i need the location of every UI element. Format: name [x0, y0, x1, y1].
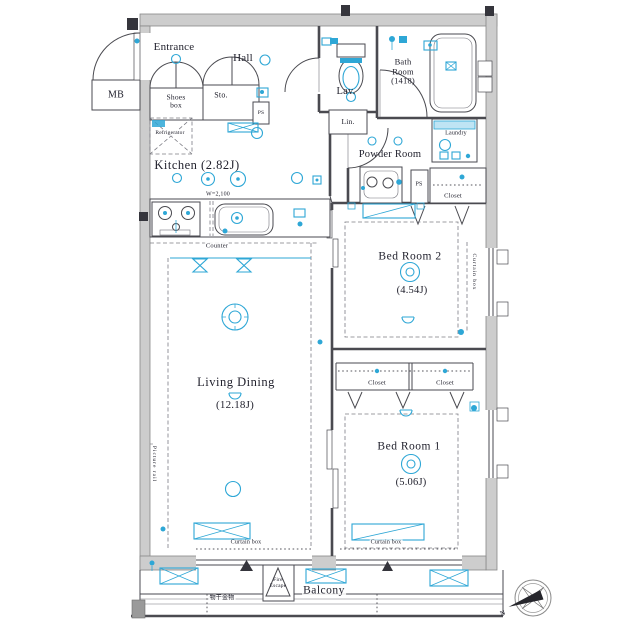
bedroom2-label: Bed Room 2	[378, 251, 441, 264]
paper-holder-icon	[322, 38, 331, 45]
closet-label: Closet	[444, 192, 462, 199]
closet-folding-door	[455, 206, 469, 224]
closet-folding-door	[348, 392, 362, 408]
column-marker	[139, 212, 148, 221]
wall-light-icon	[402, 317, 414, 323]
column-marker	[485, 6, 494, 16]
wall-light-icon	[400, 410, 412, 416]
living-dining-label: Living Dining	[197, 375, 275, 389]
living-dining-size-label: (12.18J)	[216, 399, 254, 411]
shoes-box-bifold-door	[150, 62, 203, 88]
ceiling-light-icon	[292, 173, 303, 184]
ceiling-light-icon	[252, 128, 263, 139]
ceiling-light-icon	[173, 174, 182, 183]
lavatory-label: Lav.	[336, 86, 355, 98]
column-marker	[127, 18, 138, 30]
refrigerator-label: Refrigerator	[154, 130, 185, 136]
fire-escape-label: Fire Escape	[270, 578, 287, 590]
windows	[139, 33, 508, 571]
meter-box-label: MB	[108, 89, 124, 100]
shoes-box-label: Shoes box	[167, 94, 186, 111]
bedroom1-sliding-door	[327, 430, 332, 469]
closet-folding-door	[450, 392, 464, 408]
entrance-label: Entrance	[154, 41, 195, 53]
toilet-tank	[337, 44, 365, 57]
lavatory-door-swing	[285, 58, 319, 92]
kitchen-label: Kitchen (2.82J)	[154, 158, 239, 172]
laundry-pole-label: 物干金物	[209, 596, 236, 603]
curtain-box-label: Curtain box	[230, 540, 263, 547]
linen-label: Lin.	[341, 118, 354, 126]
ceiling-light-icon	[226, 482, 241, 497]
room-hanger-icon	[193, 259, 207, 272]
powder-room-label: Powder Room	[359, 149, 422, 161]
hall-label: Hall	[233, 52, 253, 64]
bedroom1-size-label: (5.06J)	[396, 477, 427, 489]
balcony-faucet-icon	[150, 561, 155, 566]
curtain-box-label: Curtain box	[471, 253, 477, 290]
counter-width-label: W=2,100	[206, 192, 230, 199]
ceiling-light-icon	[368, 137, 376, 145]
closet-label: Closet	[368, 379, 386, 386]
entry-door-swing	[93, 33, 140, 80]
counter-label: Counter	[205, 242, 229, 249]
closet-label: Closet	[436, 379, 454, 386]
bedroom1-label: Bed Room 1	[377, 441, 440, 454]
floor-plan-drawing: N	[0, 0, 640, 640]
pipe-space-label: PS	[258, 110, 265, 116]
laundry-label: Laundry	[445, 131, 467, 138]
room-hanger-icon	[237, 259, 251, 272]
floor-plan-page: N Entrance Hall MB Shoes box Sto. Lav. B…	[0, 0, 640, 640]
closet-folding-door	[396, 392, 410, 408]
pipe-space-label: PS	[415, 182, 422, 189]
picture-rail-label: Picture rail	[151, 446, 157, 482]
storage-label: Sto.	[214, 92, 227, 101]
compass: N	[499, 580, 551, 618]
curtain-box-label: Curtain box	[370, 540, 403, 547]
ceiling-light-icon	[394, 137, 402, 145]
bath-room-label: Bath Room (1418)	[391, 58, 415, 87]
ceiling-light-icon	[401, 263, 420, 282]
column-marker	[341, 5, 350, 16]
ceiling-light-icon	[402, 455, 421, 474]
bedroom2-size-label: (4.54J)	[397, 285, 428, 297]
shower-icon	[389, 36, 395, 42]
balcony-label: Balcony	[302, 585, 346, 598]
ceiling-light-icon	[260, 55, 270, 65]
storage-cabinet	[203, 85, 259, 120]
